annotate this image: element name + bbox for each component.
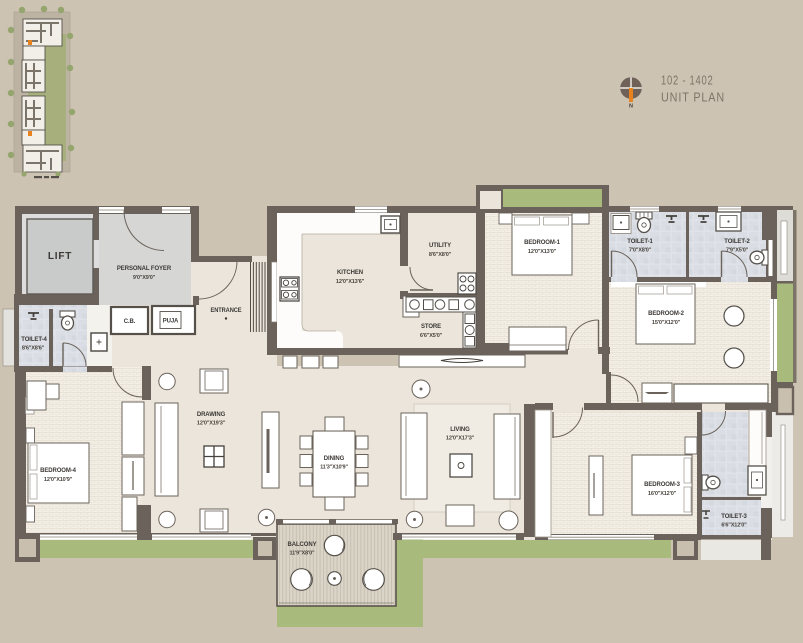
svg-text:ENTRANCE: ENTRANCE [211,308,242,314]
svg-text:12'0"X17'3": 12'0"X17'3" [446,436,475,442]
svg-text:BEDROOM-4: BEDROOM-4 [40,468,77,474]
svg-text:12'0"X13'6": 12'0"X13'6" [336,279,365,285]
svg-text:DINING: DINING [324,456,345,462]
svg-text:7'0"X8'0": 7'0"X8'0" [629,248,652,254]
svg-text:BEDROOM-3: BEDROOM-3 [644,482,681,488]
svg-text:7'9"X5'0": 7'9"X5'0" [726,248,749,254]
svg-text:6'6"X5'0": 6'6"X5'0" [420,333,443,339]
svg-text:TOILET-4: TOILET-4 [21,337,47,343]
svg-text:PERSONAL FOYER: PERSONAL FOYER [117,266,172,272]
svg-text:LIFT: LIFT [48,251,72,262]
svg-text:16'0"X12'0": 16'0"X12'0" [648,491,677,497]
svg-text:DRAWING: DRAWING [197,412,226,418]
svg-text:UNIT PLAN: UNIT PLAN [661,91,725,105]
svg-text:BEDROOM-2: BEDROOM-2 [648,311,685,317]
svg-text:12'0"X10'9": 12'0"X10'9" [44,477,73,483]
svg-text:KITCHEN: KITCHEN [337,270,363,276]
svg-text:11'9"X8'0": 11'9"X8'0" [290,551,315,557]
svg-text:BEDROOM-1: BEDROOM-1 [524,240,561,246]
svg-text:TOILET-1: TOILET-1 [627,239,653,245]
svg-text:8'6"X8'6": 8'6"X8'6" [22,346,45,352]
svg-text:UTILITY: UTILITY [429,243,451,249]
svg-text:PUJA: PUJA [163,319,179,325]
svg-text:N: N [629,104,633,110]
svg-text:TOILET-3: TOILET-3 [721,514,747,520]
svg-text:15'0"X12'0": 15'0"X12'0" [652,320,681,326]
svg-text:BALCONY: BALCONY [288,542,317,548]
svg-text:12'0"X19'3": 12'0"X19'3" [197,421,226,427]
svg-text:12'0"X13'0": 12'0"X13'0" [528,249,557,255]
svg-text:6'6"X12'0": 6'6"X12'0" [721,523,747,529]
svg-text:102 - 1402: 102 - 1402 [661,74,714,88]
svg-text:LIVING: LIVING [450,427,470,433]
svg-text:8'6"X8'0": 8'6"X8'0" [429,252,452,258]
svg-text:C.B.: C.B. [124,319,136,325]
svg-text:STORE: STORE [421,324,441,330]
svg-text:TOILET-2: TOILET-2 [724,239,750,245]
svg-text:9'0"X9'0": 9'0"X9'0" [133,275,156,281]
svg-text:11'3"X10'9": 11'3"X10'9" [320,465,348,471]
